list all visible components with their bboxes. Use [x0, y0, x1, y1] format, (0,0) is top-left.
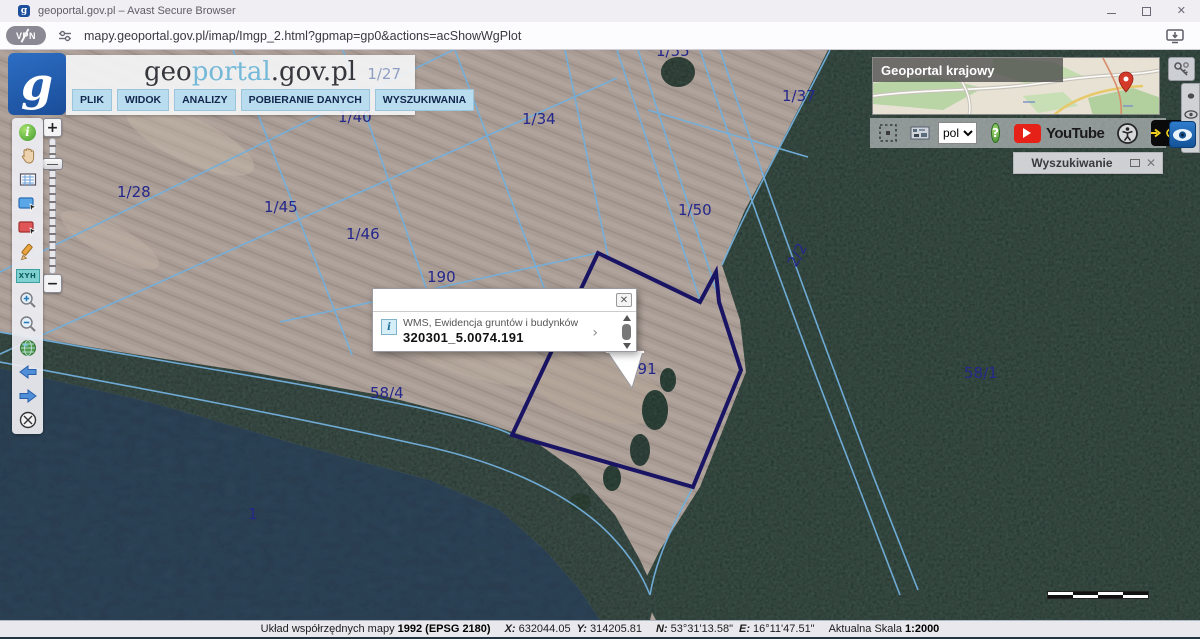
identify-popup: ✕ i WMS, Ewidencja gruntów i budynków 32… [372, 288, 637, 352]
globe-icon [19, 339, 37, 357]
menu-plik[interactable]: PLIK [72, 89, 112, 111]
parcel-number-label: 1/45 [264, 198, 298, 216]
pan-button[interactable] [14, 144, 41, 168]
site-settings-icon[interactable] [58, 30, 72, 42]
parcel-label-under-header: 1/27 [367, 65, 401, 83]
popup-divider [373, 311, 636, 312]
wms-info-icon: i [381, 319, 397, 335]
send-to-device-icon[interactable] [1166, 28, 1184, 44]
accessibility-button[interactable] [1116, 122, 1139, 145]
parcel-number-label: 1 [248, 505, 258, 523]
dotted-grid-icon [878, 123, 898, 143]
window-close-button[interactable]: ✕ [1177, 6, 1186, 17]
y-value: 314205.81 [590, 623, 642, 635]
browser-urlbar: VPN mapy.geoportal.gov.pl/imap/Imgp_2.ht… [0, 22, 1200, 50]
zoom-out-icon [19, 315, 37, 333]
tab-title: geoportal.gov.pl – Avast Secure Browser [38, 5, 236, 17]
info-button[interactable]: i [14, 120, 41, 144]
scroll-thumb[interactable] [622, 324, 631, 340]
overview-minimap[interactable]: Geoportal krajowy [872, 57, 1160, 115]
map-scale-bar [1047, 591, 1149, 599]
geoportal-wordmark: geoportal.gov.pl [144, 57, 356, 87]
vpn-badge[interactable]: VPN [6, 26, 46, 45]
previous-view-button[interactable] [14, 360, 41, 384]
parcel-number-label: 1/46 [346, 225, 380, 243]
clear-x-icon [19, 411, 37, 429]
print-button[interactable] [14, 168, 41, 192]
zoom-in-button[interactable] [14, 288, 41, 312]
visibility-dot-icon[interactable] [1185, 92, 1197, 100]
map-viewport[interactable]: 1/551/401/341/371/281/451/461/502/219019… [0, 50, 1200, 620]
scroll-down-icon[interactable] [623, 343, 631, 349]
menu-analizy[interactable]: ANALIZY [174, 89, 236, 111]
crs-value: 1992 (EPSG 2180) [398, 623, 491, 635]
contrast-arrow-icon [1151, 128, 1163, 138]
status-bar: Układ współrzędnych mapy 1992 (EPSG 2180… [0, 620, 1200, 637]
search-panel-close-icon[interactable]: ✕ [1146, 156, 1156, 170]
geoportal-header: geoportal.gov.pl 1/27 PLIK WIDOK ANALIZY… [66, 55, 415, 115]
popup-layer-name: WMS, Ewidencja gruntów i budynków [403, 317, 578, 329]
x-label: X: [505, 623, 516, 635]
browser-window: g geoportal.gov.pl – Avast Secure Browse… [0, 0, 1200, 639]
scale-label: Aktualna Skala [829, 623, 902, 635]
popup-parcel-id[interactable]: 320301_5.0074.191 [403, 330, 578, 345]
next-view-button[interactable] [14, 384, 41, 408]
e-value: 16°11'47.51" [753, 623, 815, 635]
parcel-number-label: 1/37 [782, 87, 816, 105]
pixel-map-icon [910, 125, 930, 141]
zoom-slider-minus-button[interactable]: − [43, 274, 62, 293]
language-select[interactable]: pol [938, 122, 977, 144]
parcel-number-label: 190 [427, 268, 456, 286]
xyh-icon: XYH [16, 269, 40, 283]
n-label: N: [656, 623, 668, 635]
help-button[interactable]: ? [991, 123, 1000, 143]
visibility-eye-icon[interactable] [1184, 110, 1198, 119]
arrow-right-icon [19, 389, 37, 403]
zoom-in-icon [19, 291, 37, 309]
parcel-number-label: 58/1 [964, 364, 998, 382]
main-menu: PLIK WIDOK ANALIZY POBIERANIE DANYCH WYS… [72, 89, 474, 111]
blue-eye-icon [1172, 128, 1193, 142]
zoom-slider-handle[interactable] [42, 158, 63, 170]
parcel-number-label: 1/50 [678, 201, 712, 219]
draw-button[interactable] [14, 240, 41, 264]
map-toolbar: i XYH [12, 118, 43, 434]
draw-pencil-icon [19, 243, 37, 261]
info-icon: i [19, 124, 36, 141]
login-keys-button[interactable] [1168, 57, 1195, 81]
menu-pobieranie-danych[interactable]: POBIERANIE DANYCH [241, 89, 370, 111]
popup-tail [606, 351, 646, 391]
select-rectangle-icon [18, 196, 38, 213]
clear-selection-rectangle-icon [18, 220, 38, 237]
geoportal-logo[interactable]: g [8, 53, 66, 115]
browser-titlebar: g geoportal.gov.pl – Avast Secure Browse… [0, 0, 1200, 22]
menu-wyszukiwania[interactable]: WYSZUKIWANIA [375, 89, 474, 111]
n-value: 53°31'13.58" [671, 623, 733, 635]
select-region-button[interactable] [878, 123, 898, 143]
pan-hand-icon [19, 147, 37, 165]
search-panel[interactable]: Wyszukiwanie ✕ [1013, 152, 1163, 174]
youtube-play-icon [1014, 124, 1041, 143]
menu-widok[interactable]: WIDOK [117, 89, 169, 111]
search-panel-minimize-icon[interactable] [1130, 159, 1140, 167]
clear-map-button[interactable] [14, 408, 41, 432]
e-label: E: [739, 623, 750, 635]
select-area-button[interactable] [14, 192, 41, 216]
crs-prefix: Układ współrzędnych mapy [261, 623, 395, 635]
keys-icon [1173, 61, 1191, 77]
window-minimize-button[interactable] [1107, 9, 1116, 14]
top-right-toolbar: pol ? YouTube [870, 118, 1166, 148]
coordinates-button[interactable]: XYH [14, 264, 41, 288]
zoom-slider-plus-button[interactable]: + [43, 118, 62, 137]
basemap-button[interactable] [910, 125, 930, 141]
url-input[interactable]: mapy.geoportal.gov.pl/imap/Imgp_2.html?g… [84, 29, 521, 43]
parcel-number-label: 1/55 [656, 50, 690, 60]
window-restore-button[interactable] [1142, 7, 1151, 16]
scroll-up-icon[interactable] [623, 315, 631, 321]
youtube-button[interactable]: YouTube [1014, 124, 1104, 143]
parcel-number-label: 1/28 [117, 183, 151, 201]
scale-value: 1:2000 [905, 623, 939, 635]
print-map-icon [19, 172, 37, 188]
popup-expand-chevron[interactable]: › [592, 325, 598, 341]
search-panel-title: Wyszukiwanie [1014, 156, 1130, 170]
parcel-number-label: 58/4 [370, 384, 404, 402]
popup-close-button[interactable]: ✕ [616, 293, 632, 307]
full-extent-button[interactable] [14, 336, 41, 360]
arrow-left-icon [19, 365, 37, 379]
zoom-out-button[interactable] [14, 312, 41, 336]
y-label: Y: [577, 623, 587, 635]
minimap-title: Geoportal krajowy [873, 58, 1063, 82]
layers-eye-button[interactable] [1169, 121, 1196, 148]
x-value: 632044.05 [519, 623, 571, 635]
popup-scrollbar [620, 315, 633, 349]
accessibility-icon [1116, 122, 1139, 145]
parcel-number-label: 1/34 [522, 110, 556, 128]
clear-selection-button[interactable] [14, 216, 41, 240]
tab-favicon: g [18, 5, 30, 17]
